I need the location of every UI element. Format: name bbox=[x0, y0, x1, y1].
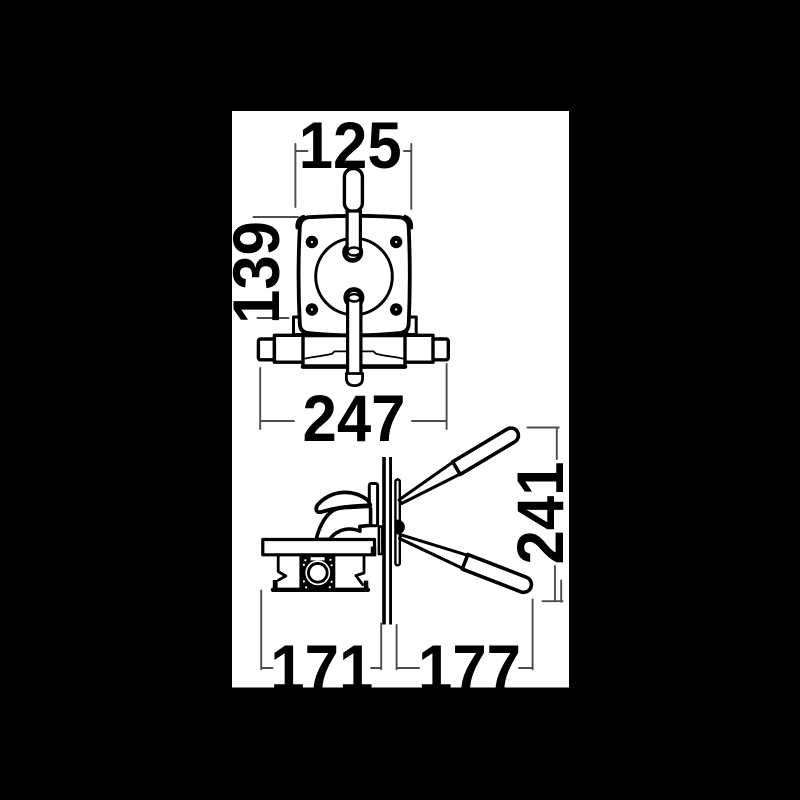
svg-text:125: 125 bbox=[299, 108, 402, 182]
svg-text:241: 241 bbox=[503, 462, 577, 565]
svg-text:247: 247 bbox=[303, 381, 406, 455]
